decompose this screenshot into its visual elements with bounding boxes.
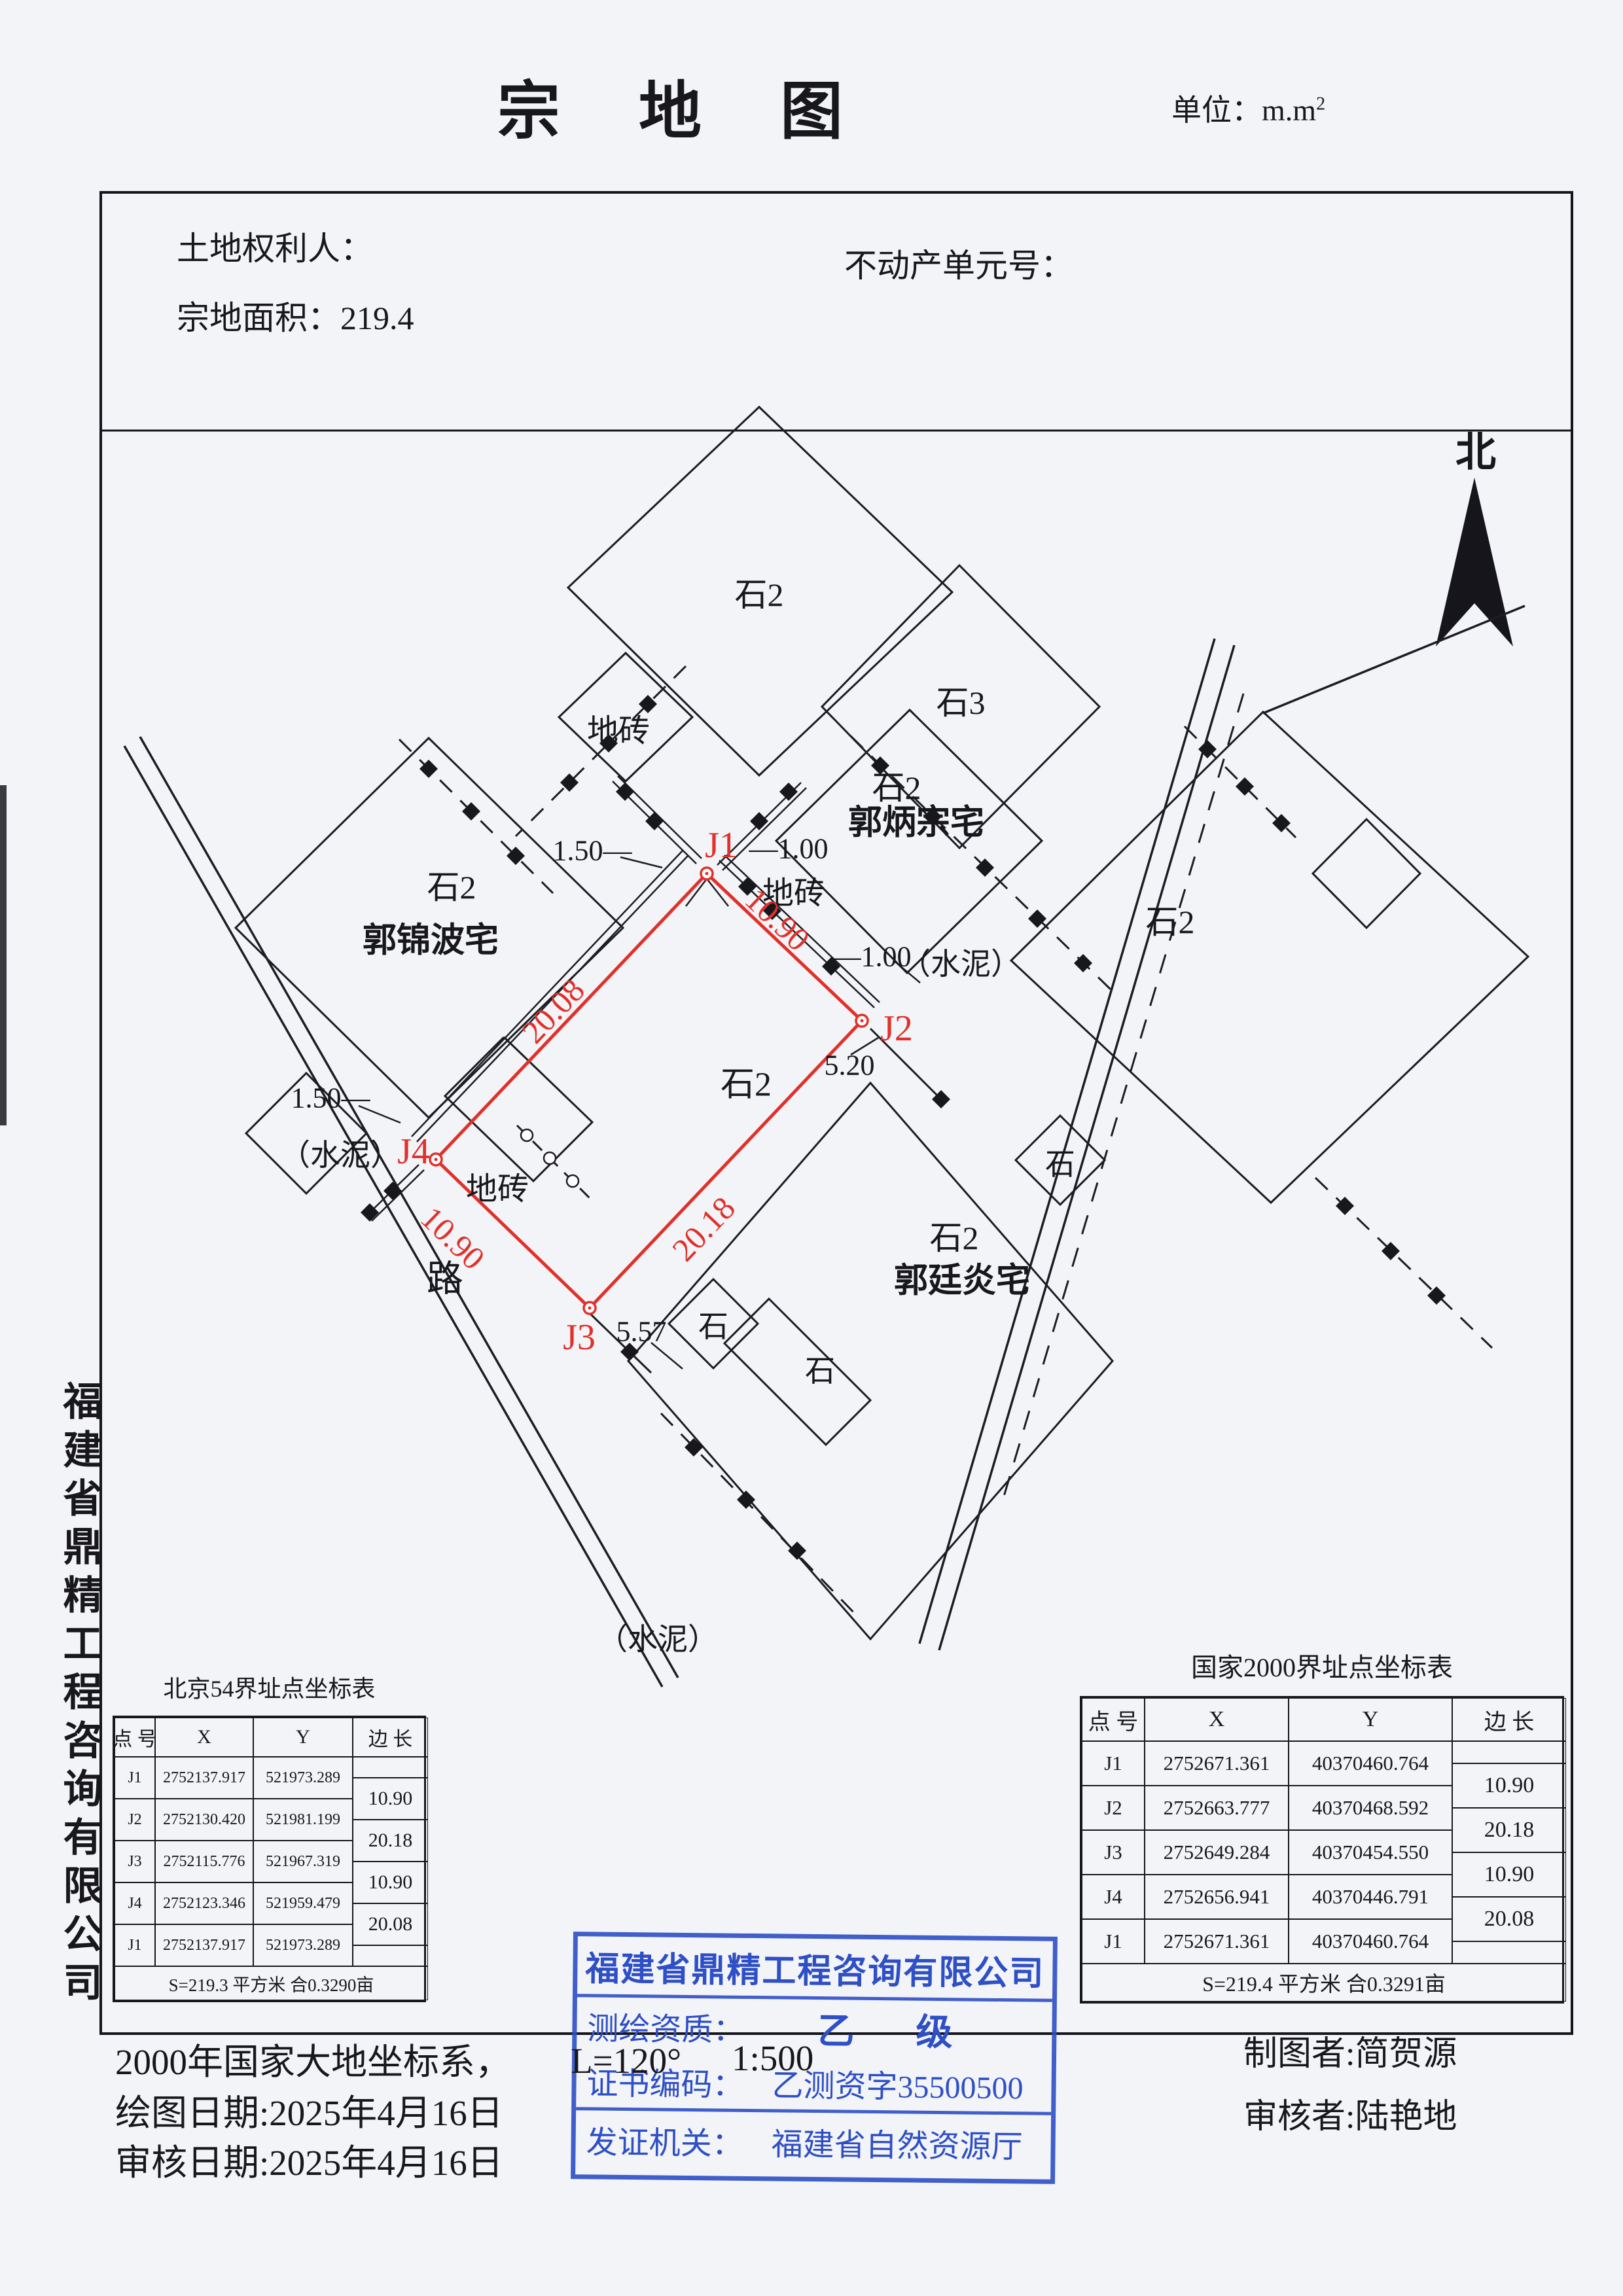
x-coordinate-cell: 2752123.346 <box>155 1882 253 1924</box>
fence-post-marker <box>1074 954 1092 972</box>
column-header: 点 号 <box>1082 1698 1145 1741</box>
boundary-point-dot <box>588 1307 592 1310</box>
edge-length-cell: 10.90 <box>353 1862 428 1903</box>
edge-length-spacer <box>353 1757 428 1778</box>
y-coordinate-cell: 521967.319 <box>253 1841 353 1882</box>
map-label: —1.00 <box>832 940 912 974</box>
courtyard-point-marker <box>567 1175 579 1187</box>
edge-length-cell: 10.90 <box>1452 1852 1566 1897</box>
y-coordinate-cell: 521973.289 <box>253 1757 353 1799</box>
edge-length-spacer <box>1452 1741 1566 1763</box>
stamp-issuer-label: 发证机关： <box>575 2116 743 2164</box>
column-header: X <box>1145 1698 1289 1741</box>
point-id-cell: J1 <box>1082 1741 1145 1786</box>
area-summary-cell: S=219.4 平方米 合0.3291亩 <box>1082 1964 1566 2002</box>
north-arrow-icon <box>1436 478 1513 646</box>
edge-length-cell: 20.18 <box>353 1820 428 1862</box>
point-id-cell: J1 <box>115 1757 155 1799</box>
point-id-cell: J4 <box>1082 1875 1145 1919</box>
x-coordinate-cell: 2752671.361 <box>1145 1919 1289 1964</box>
drafter-name: 制图者:简贺源 <box>1243 2026 1457 2075</box>
map-label: 石 <box>1045 1140 1075 1184</box>
draw-date: 绘图日期:2025年4月16日 <box>115 2083 503 2136</box>
map-label: 郭炳宗宅 <box>848 795 984 844</box>
courtyard-point-marker <box>521 1129 533 1141</box>
fence-post-marker <box>788 1542 806 1560</box>
map-label: J1 <box>705 824 738 866</box>
parcel-map-page: 宗 地 图 单位：m.m2 土地权利人： 不动产单元号： 宗地面积：219.4 … <box>0 0 1623 2296</box>
column-header: 边 长 <box>353 1718 428 1757</box>
x-coordinate-cell: 2752137.917 <box>155 1924 253 1966</box>
table-title: 国家2000界址点坐标表 <box>1080 1646 1564 1684</box>
map-label: J4 <box>397 1131 430 1173</box>
map-label: 郭锦波宅 <box>363 913 499 962</box>
edge-length-spacer <box>1452 1941 1566 1964</box>
edge-length-cell: 10.90 <box>1452 1763 1566 1808</box>
point-id-cell: J3 <box>115 1841 155 1882</box>
area-summary-cell: S=219.3 平方米 合0.3290亩 <box>115 1966 428 2000</box>
stamp-company: 福建省鼎精工程咨询有限公司 <box>577 1936 1053 2002</box>
map-label: J3 <box>563 1316 596 1358</box>
boundary-point-dot <box>435 1158 438 1161</box>
y-coordinate-cell: 40370468.592 <box>1289 1786 1452 1830</box>
stamp-issuer-row: 发证机关： 福建省自然资源厅 <box>575 2107 1051 2173</box>
table-title: 北京54界址点坐标表 <box>113 1670 426 1704</box>
x-coordinate-cell: 2752656.941 <box>1145 1875 1289 1919</box>
y-coordinate-cell: 40370454.550 <box>1289 1830 1452 1875</box>
map-label: 石2 <box>427 861 476 908</box>
coordinate-system-note: 2000年国家大地坐标系， <box>115 2032 511 2085</box>
stamp-issuer-value: 福建省自然资源厅 <box>743 2118 1051 2167</box>
x-coordinate-cell: 2752137.917 <box>155 1757 253 1799</box>
edge-length-cell: 20.18 <box>1452 1808 1566 1852</box>
map-label: 石2 <box>721 1057 772 1106</box>
map-label: （水泥） <box>597 1616 718 1659</box>
map-label: 地砖 <box>466 1163 529 1209</box>
map-label: 1.50— <box>553 834 632 868</box>
map-label: —1.00 <box>749 832 829 866</box>
y-coordinate-cell: 40370446.791 <box>1289 1875 1452 1919</box>
map-label: 5.57 <box>616 1315 667 1349</box>
fence-post-marker <box>645 812 664 830</box>
y-coordinate-cell: 40370460.764 <box>1289 1741 1452 1786</box>
fence-post-marker <box>616 783 634 801</box>
x-coordinate-cell: 2752671.361 <box>1145 1741 1289 1786</box>
map-label: 石2 <box>1146 896 1195 943</box>
map-label: J2 <box>880 1008 913 1050</box>
map-label: 石 <box>698 1303 728 1346</box>
map-label: 石2 <box>735 569 784 616</box>
boundary-point-dot <box>705 872 709 875</box>
map-label: 郭廷炎宅 <box>894 1253 1030 1302</box>
reviewer-name: 审核者:陆艳地 <box>1243 2089 1457 2138</box>
map-label: （水泥） <box>280 1131 401 1174</box>
boundary-point-dot <box>861 1019 864 1023</box>
point-id-cell: J2 <box>115 1799 155 1841</box>
edge-length-spacer <box>353 1945 428 1966</box>
y-coordinate-cell: 521973.289 <box>253 1924 353 1966</box>
courtyard-point-marker <box>544 1152 556 1164</box>
column-header: Y <box>253 1718 353 1757</box>
point-id-cell: J3 <box>1082 1830 1145 1875</box>
point-id-cell: J1 <box>1082 1919 1145 1964</box>
map-label: 石 <box>805 1347 835 1390</box>
map-scale-note: 1:500 <box>732 2038 813 2079</box>
table-beijing54: 北京54界址点坐标表点 号XY边 长J12752137.917521973.28… <box>113 1670 426 2002</box>
fence-post-marker <box>737 1491 755 1509</box>
review-date: 审核日期:2025年4月16日 <box>115 2133 503 2185</box>
column-header: X <box>155 1718 253 1757</box>
column-header: 边 长 <box>1452 1698 1566 1741</box>
x-coordinate-cell: 2752649.284 <box>1145 1830 1289 1875</box>
central-meridian-note: L=120° <box>571 2040 681 2081</box>
column-header: Y <box>1289 1698 1452 1741</box>
edge-length-cell: 10.90 <box>353 1778 428 1820</box>
map-label: 地砖 <box>587 705 650 751</box>
edge-length-cell: 20.08 <box>1452 1897 1566 1941</box>
x-coordinate-cell: 2752663.777 <box>1145 1786 1289 1830</box>
map-label: （水泥） <box>901 940 1021 983</box>
table-cgcs2000: 国家2000界址点坐标表点 号XY边 长J12752671.3614037046… <box>1080 1646 1564 2004</box>
edge-length-cell: 20.08 <box>353 1903 428 1945</box>
y-coordinate-cell: 40370460.764 <box>1289 1919 1452 1964</box>
map-label: 石3 <box>936 677 986 724</box>
map-label: 5.20 <box>825 1049 875 1082</box>
x-coordinate-cell: 2752130.420 <box>155 1799 253 1841</box>
point-id-cell: J4 <box>115 1882 155 1924</box>
x-coordinate-cell: 2752115.776 <box>155 1841 253 1882</box>
table-grid: 点 号XY边 长J12752671.36140370460.764J227526… <box>1080 1696 1564 2004</box>
table-grid: 点 号XY边 长J12752137.917521973.289J22752130… <box>113 1716 426 2002</box>
y-coordinate-cell: 521959.479 <box>253 1882 353 1924</box>
point-id-cell: J2 <box>1082 1786 1145 1830</box>
company-sidebar: 福建省鼎精工程咨询有限公司 <box>51 1381 108 2048</box>
map-label: 石2 <box>930 1212 979 1259</box>
column-header: 点 号 <box>115 1718 155 1757</box>
point-id-cell: J1 <box>115 1924 155 1966</box>
y-coordinate-cell: 521981.199 <box>253 1799 353 1841</box>
map-label: 1.50— <box>291 1082 370 1115</box>
